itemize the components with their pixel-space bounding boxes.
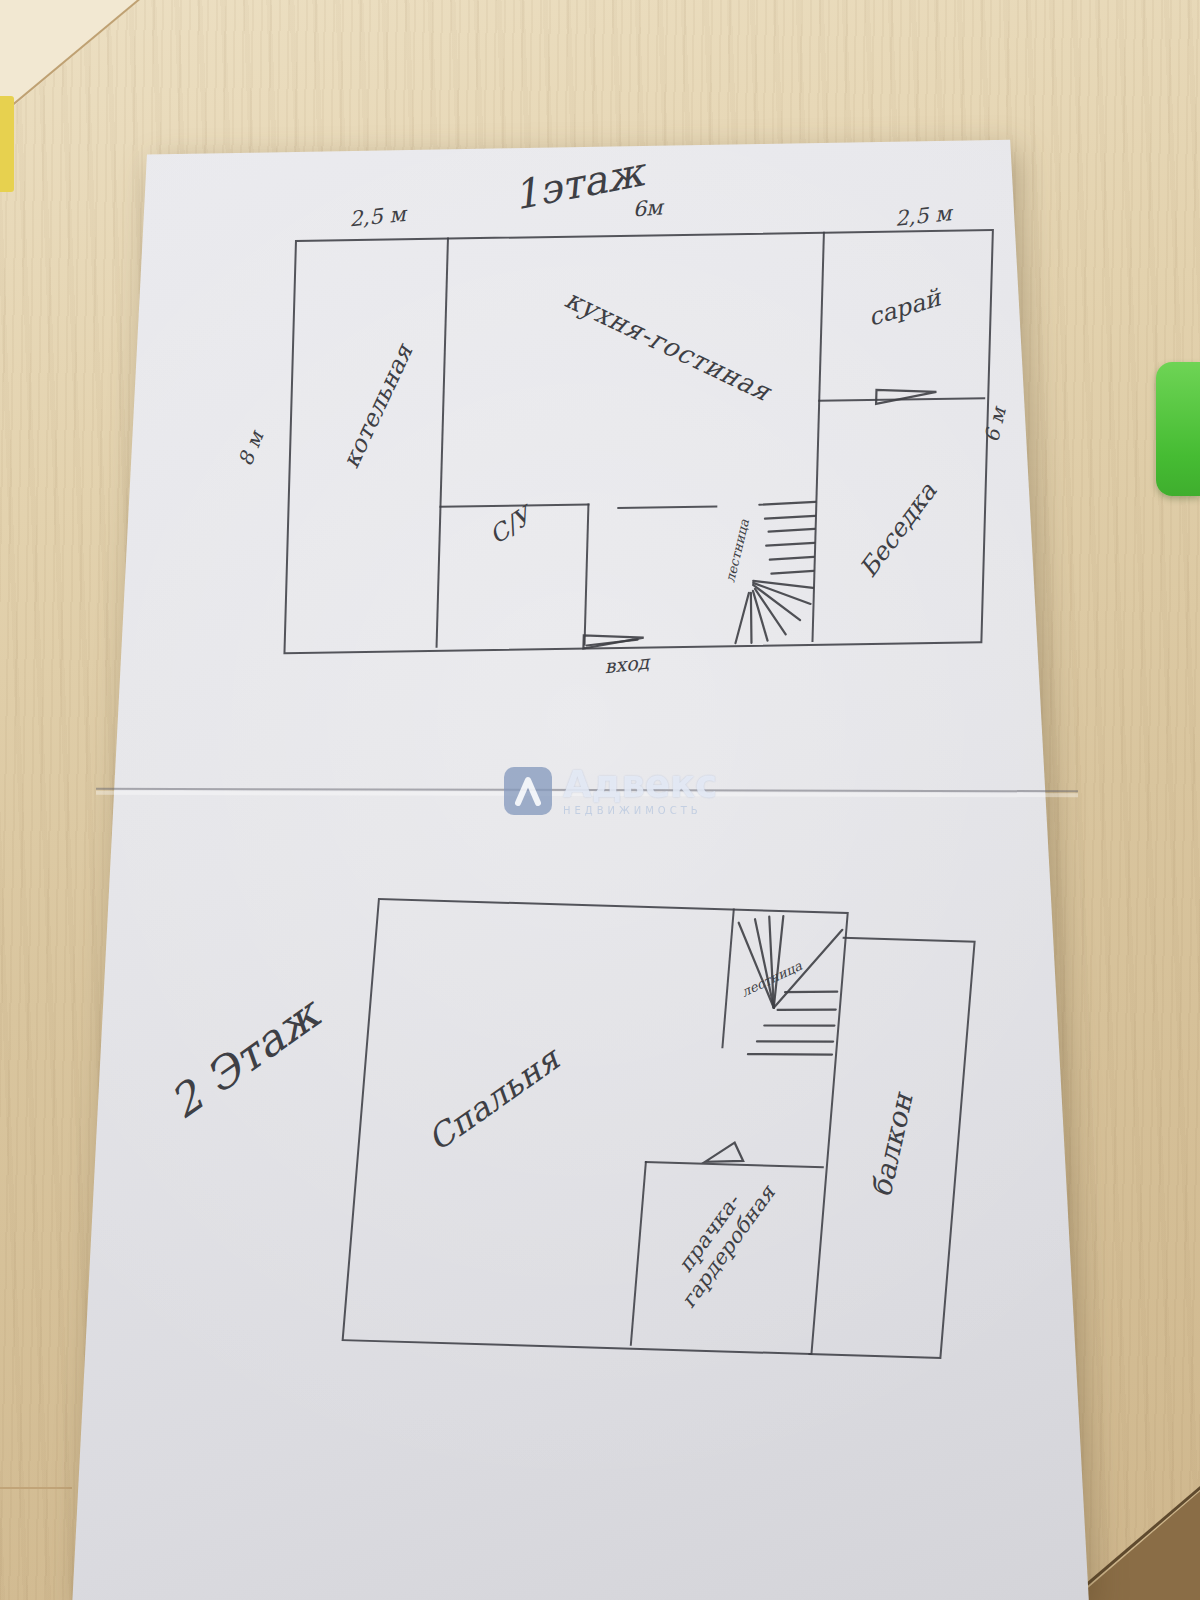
floor1-dim-top-middle: 6м: [633, 195, 663, 221]
shed-door-symbol: [872, 386, 941, 407]
entrance-door-symbol: [581, 631, 648, 652]
watermark-brand: Адвекс: [563, 766, 717, 803]
entrance-label: вход: [604, 652, 650, 678]
floor1-plan: 1этаж 2,5 м 6м 2,5 м 8 м 6 м котельная к…: [284, 229, 990, 650]
floor2-plan: 2 Этаж Спальня лестница прачка- гардероб…: [342, 898, 978, 1355]
photo-of-floor-plan-sketch: Адвекс НЕДВИЖИМОСТЬ 1эт: [0, 0, 1200, 1600]
floor1-outer-walls: [283, 229, 993, 654]
floor2-stairs-drawing: [718, 910, 848, 1059]
lambda-logo-glyph: [511, 774, 545, 808]
advecs-logo-icon: [504, 767, 552, 815]
watermark-text: Адвекс НЕДВИЖИМОСТЬ: [563, 766, 717, 816]
laundry-door-symbol: [703, 1140, 751, 1165]
watermark-subtitle: НЕДВИЖИМОСТЬ: [563, 805, 702, 816]
agency-watermark: Адвекс НЕДВИЖИМОСТЬ: [504, 766, 717, 816]
